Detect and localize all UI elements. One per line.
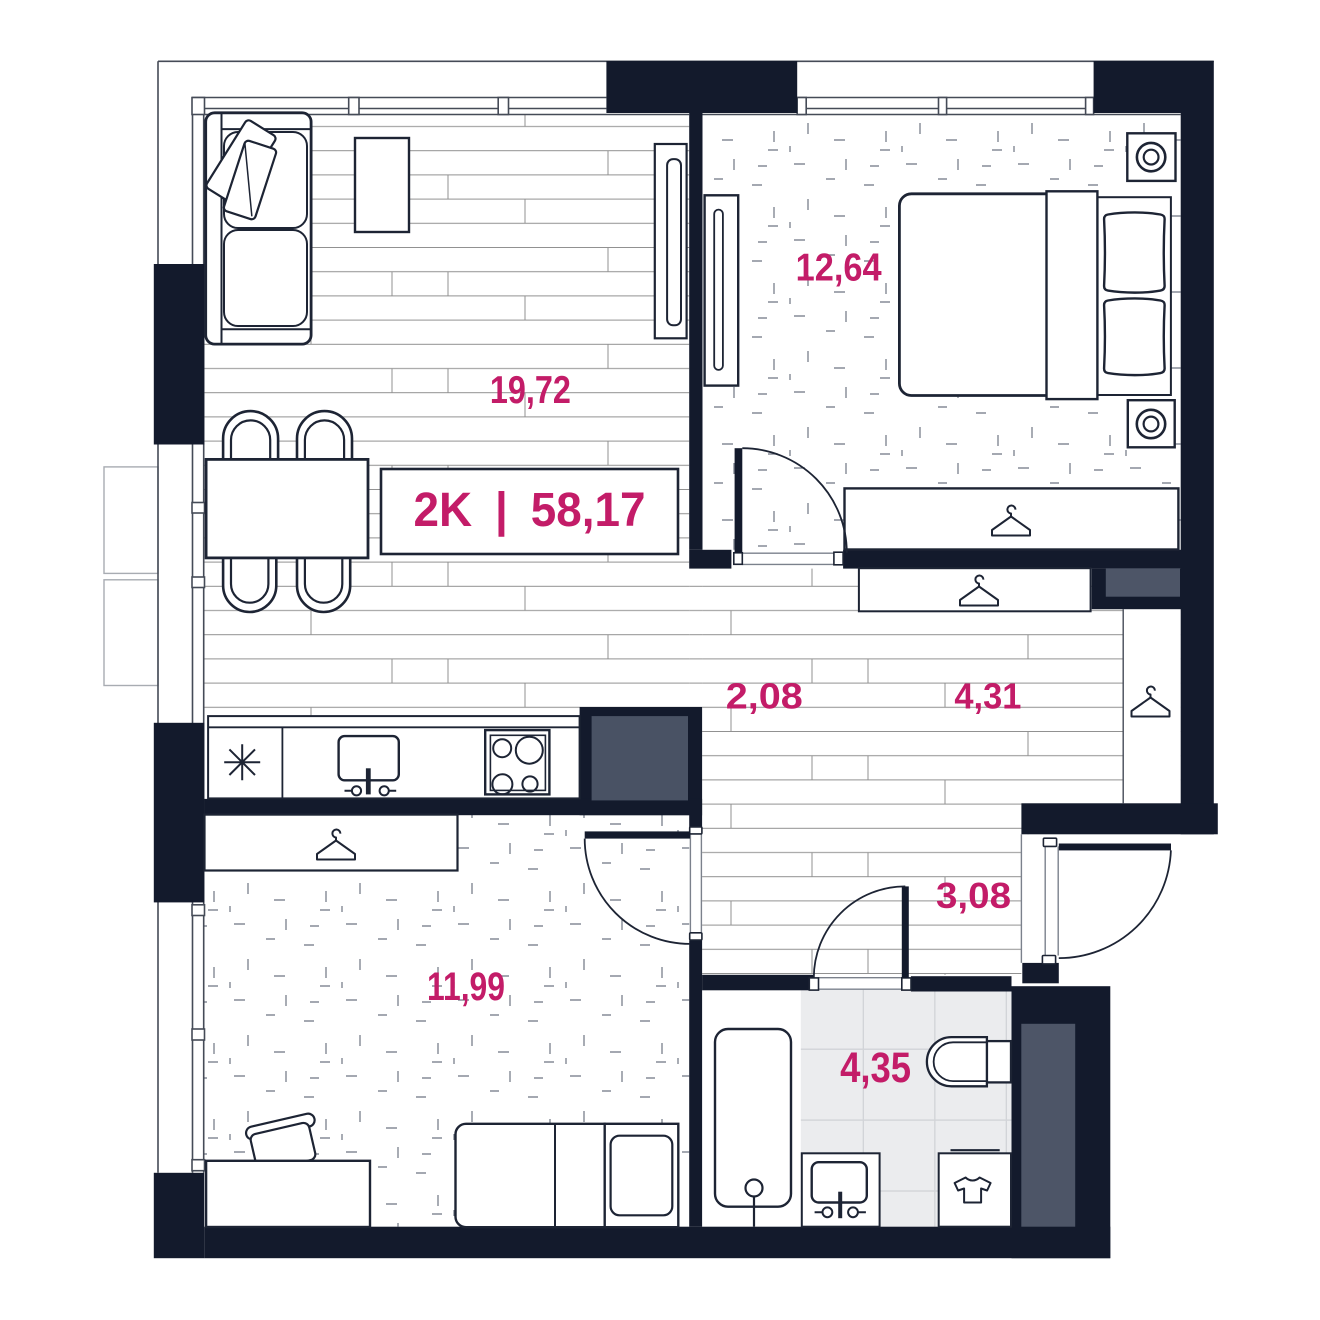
svg-text:2K | 58,17: 2K | 58,17 <box>414 484 646 537</box>
svg-text:19,72: 19,72 <box>490 369 571 412</box>
svg-text:4,31: 4,31 <box>954 676 1021 717</box>
svg-text:12,64: 12,64 <box>796 246 882 289</box>
svg-text:4,35: 4,35 <box>840 1044 911 1092</box>
svg-text:2,08: 2,08 <box>726 676 803 717</box>
svg-text:11,99: 11,99 <box>427 965 505 1009</box>
svg-text:3,08: 3,08 <box>936 875 1011 916</box>
